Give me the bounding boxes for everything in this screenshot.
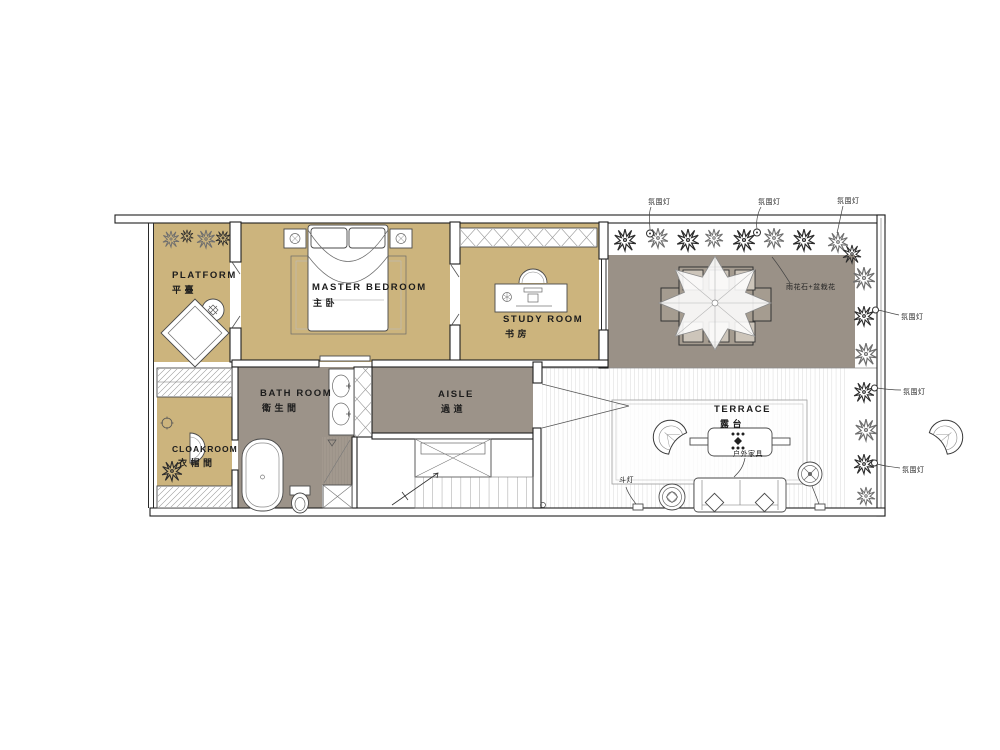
master-bedroom-label-cn: 主卧 [313, 297, 338, 308]
wardrobe-hatch-bottom [158, 487, 231, 507]
fan-chair-right [927, 413, 969, 456]
aisle-bottom-wall [372, 433, 533, 439]
wall-stairs-terrace [533, 428, 541, 508]
double-bed [308, 225, 388, 331]
staircase [392, 439, 546, 508]
plant-icon [764, 228, 784, 248]
wall-platform-bedroom-bottom [230, 328, 241, 362]
wardrobe-hatch-top [158, 369, 231, 396]
round-side-table [798, 462, 822, 486]
floor-light-fixture [815, 504, 825, 510]
plant-icon [857, 487, 875, 505]
study-window [602, 259, 607, 330]
mid-wall-left [232, 360, 319, 367]
parasol-canopy-icon [659, 256, 771, 350]
platform-label-en: PLATFORM [172, 270, 237, 281]
floor-light-fixture [633, 504, 643, 510]
platform-label-cn: 平臺 [172, 284, 197, 295]
pillow-right [349, 228, 385, 248]
ambient-light-label: 氛围灯 [902, 465, 925, 474]
outdoor-furniture-label: 户外家具 [733, 449, 763, 458]
pebbles-potted-label: 雨花石+盆栽花 [786, 282, 836, 291]
study-door-leaf-2 [451, 314, 459, 326]
study-room-label-cn: 书房 [505, 328, 530, 339]
wall-bedroom-study-bottom [450, 325, 460, 362]
plant-icon [854, 306, 874, 326]
terrace-label-cn: 露台 [720, 418, 745, 429]
ambient-light-fixture [872, 385, 878, 391]
bedroom-sliding-door [320, 356, 370, 361]
outdoor-sofa [694, 478, 786, 512]
garden-pavilion [659, 256, 771, 350]
ambient-light-label: 氛围灯 [758, 197, 781, 206]
ambient-light-label: 氛围灯 [648, 197, 671, 206]
terrace-label-en: TERRACE [714, 404, 771, 415]
bathtub [242, 439, 283, 511]
study-closet-hatch [461, 229, 596, 246]
master-bedroom-label-en: MASTER BEDROOM [312, 282, 427, 293]
ambient-light-label: 氛围灯 [837, 196, 860, 205]
ambient-light-fixture [872, 460, 878, 466]
plant-icon [855, 343, 877, 365]
duct-shaft-hatch [355, 368, 371, 436]
wall-platform-bedroom-top [230, 222, 241, 262]
spot-light-label: 斗灯 [619, 475, 634, 484]
study-room-label-en: STUDY ROOM [503, 314, 583, 325]
plant-icon [733, 229, 755, 251]
ambient-light-label: 氛围灯 [901, 312, 924, 321]
plant-icon [793, 229, 815, 251]
toilet [290, 486, 310, 513]
aisle-label-en: AISLE [438, 389, 474, 400]
plant-icon [853, 267, 875, 289]
floor-plan-canvas: PLATFORM 平臺 MASTER BEDROOM 主卧 STUDY ROOM… [0, 0, 1000, 750]
aisle-floor [372, 367, 533, 433]
plant-icon [828, 232, 848, 252]
aisle-label-cn: 過道 [440, 403, 466, 414]
cloakroom-label-cn: 衣帽間 [178, 457, 216, 468]
study-door-leaf [451, 265, 459, 277]
mid-wall-right [372, 360, 608, 367]
plant-icon [854, 454, 874, 474]
wall-bath-cloak-bottom [232, 470, 238, 508]
terrace-door-jamb-top [533, 362, 542, 383]
stair-treads [415, 477, 533, 508]
round-planter [659, 484, 685, 510]
plant-icon [705, 229, 723, 247]
platform-door-leaf-2 [232, 316, 240, 328]
bath-room-label-cn: 衛生間 [261, 402, 300, 413]
plant-icon [677, 229, 699, 251]
plant-icon [854, 382, 874, 402]
plant-icon [855, 419, 877, 441]
bath-room-label-en: BATH ROOM [260, 388, 332, 399]
wall-bath-stairs [352, 437, 357, 508]
wall-bedroom-study-top [450, 222, 460, 264]
plant-icon [614, 229, 636, 251]
wall-bath-cloak-top [232, 367, 238, 440]
wall-study-garden-top [599, 222, 608, 259]
left-window [149, 223, 154, 508]
cloakroom-label-en: CLOAKROOM [172, 444, 238, 454]
floor-plan-drawing: PLATFORM 平臺 MASTER BEDROOM 主卧 STUDY ROOM… [0, 0, 1000, 750]
ambient-light-fixture [873, 307, 879, 313]
ambient-light-label: 氛围灯 [903, 387, 926, 396]
pillow-left [311, 228, 347, 248]
